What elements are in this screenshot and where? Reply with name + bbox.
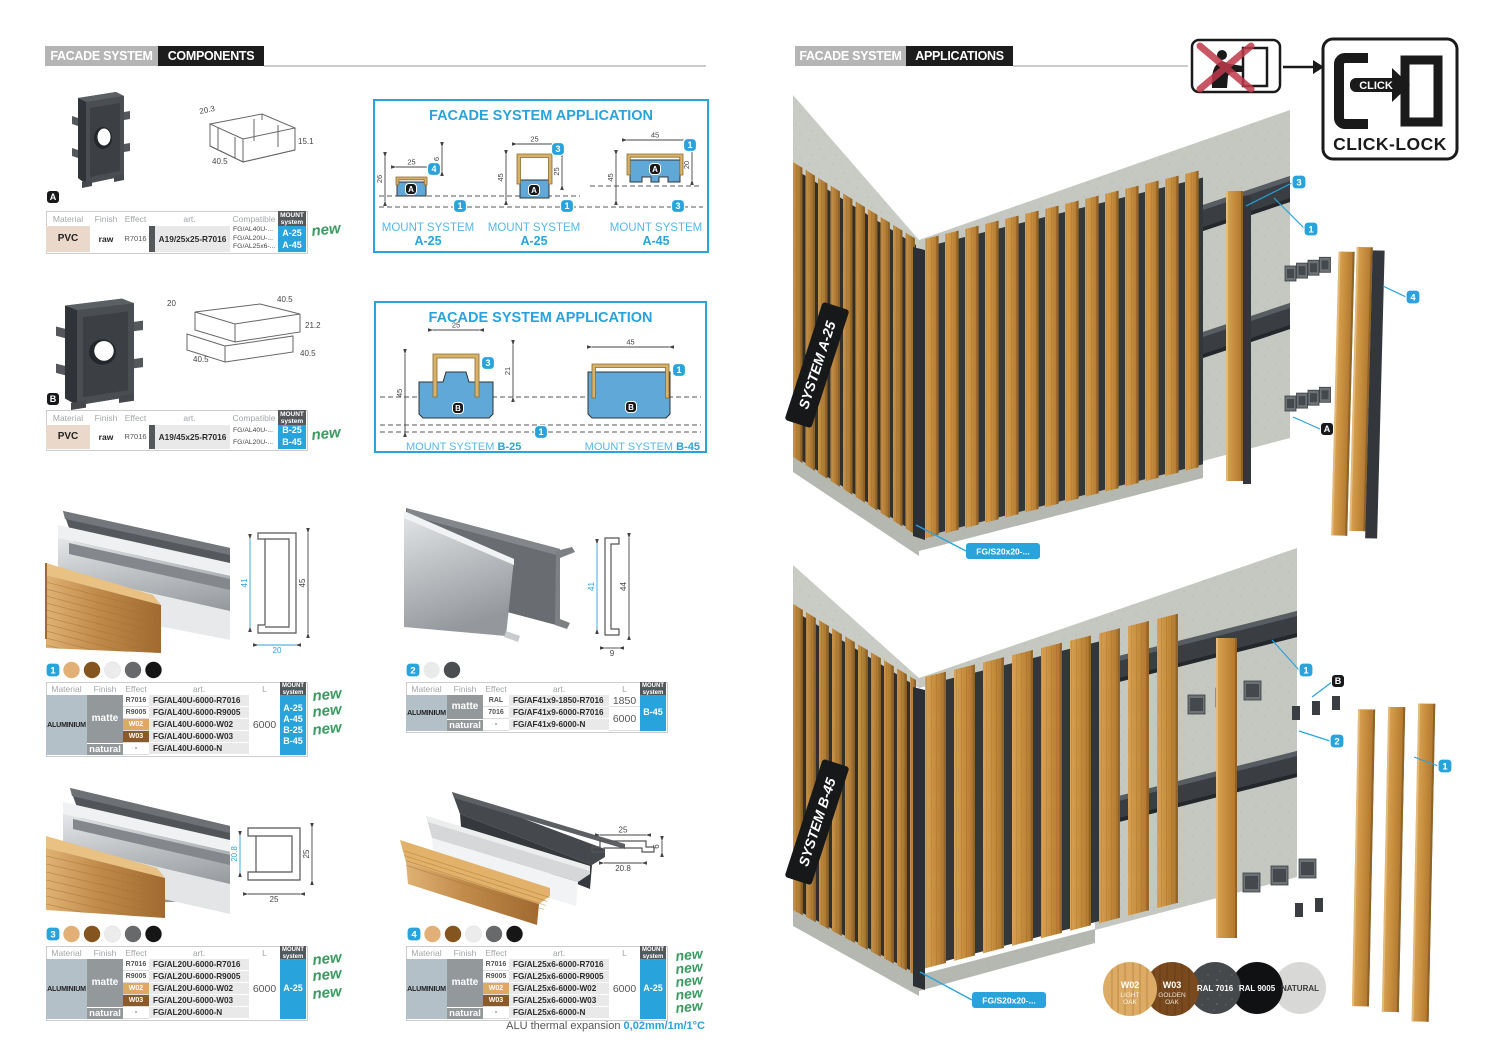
svg-text:A: A [408, 185, 414, 194]
svg-text:1: 1 [1442, 761, 1448, 772]
svg-text:1: 1 [1308, 224, 1314, 235]
svg-text:MOUNT SYSTEM B-45: MOUNT SYSTEM B-45 [585, 441, 700, 453]
svg-text:40.5: 40.5 [212, 157, 228, 166]
svg-text:25: 25 [407, 158, 415, 167]
svg-text:MOUNT SYSTEM: MOUNT SYSTEM [488, 222, 580, 234]
svg-text:9: 9 [610, 649, 615, 658]
svg-text:3: 3 [675, 201, 680, 211]
svg-text:45: 45 [395, 389, 404, 397]
svg-text:FG/S20x20-...: FG/S20x20-... [976, 547, 1029, 557]
svg-text:MOUNT SYSTEM B-25: MOUNT SYSTEM B-25 [406, 441, 521, 453]
svg-text:A-25: A-25 [414, 234, 441, 248]
svg-text:2: 2 [1334, 736, 1339, 747]
svg-text:A: A [1324, 424, 1331, 434]
svg-text:OAK: OAK [1165, 999, 1179, 1006]
svg-text:GOLDEN: GOLDEN [1158, 992, 1186, 999]
svg-text:25: 25 [302, 849, 311, 858]
svg-text:1: 1 [676, 365, 681, 375]
svg-text:3: 3 [485, 358, 490, 368]
svg-text:1: 1 [538, 427, 543, 437]
svg-text:3: 3 [555, 144, 560, 154]
svg-text:21: 21 [503, 367, 512, 375]
svg-text:B: B [628, 403, 634, 412]
svg-text:A: A [531, 186, 537, 195]
svg-text:4: 4 [431, 164, 436, 174]
svg-text:NATURAL: NATURAL [1281, 984, 1319, 993]
svg-text:21.2: 21.2 [305, 321, 321, 330]
svg-text:new: new [311, 424, 343, 444]
svg-text:41: 41 [240, 578, 249, 587]
svg-text:1: 1 [687, 140, 692, 150]
svg-text:45: 45 [651, 131, 659, 140]
svg-text:CLICK: CLICK [1359, 80, 1393, 92]
svg-text:26: 26 [375, 175, 384, 183]
svg-text:45: 45 [298, 578, 307, 587]
svg-text:CLICK-LOCK: CLICK-LOCK [1333, 134, 1447, 154]
svg-text:A-25: A-25 [520, 234, 547, 248]
svg-text:3: 3 [1296, 177, 1301, 188]
svg-text:1: 1 [564, 201, 569, 211]
svg-text:FG/S20x20-...: FG/S20x20-... [982, 996, 1035, 1006]
svg-text:new: new [311, 220, 343, 240]
svg-text:40.5: 40.5 [300, 349, 316, 358]
svg-text:6: 6 [432, 157, 441, 161]
svg-text:new: new [312, 965, 344, 985]
svg-text:6: 6 [652, 844, 661, 849]
svg-text:45: 45 [496, 173, 505, 181]
svg-text:25: 25 [619, 826, 628, 835]
svg-text:RAL 7016: RAL 7016 [1197, 984, 1234, 993]
svg-text:25: 25 [270, 895, 279, 904]
svg-text:25: 25 [530, 135, 538, 144]
svg-text:new: new [312, 719, 344, 739]
svg-text:44: 44 [619, 582, 628, 591]
svg-text:new: new [312, 983, 344, 1003]
svg-text:OAK: OAK [1123, 999, 1137, 1006]
svg-text:4: 4 [1410, 292, 1416, 303]
svg-text:41: 41 [587, 582, 596, 591]
svg-text:W02: W02 [1121, 980, 1140, 990]
svg-text:4: 4 [411, 929, 417, 940]
svg-text:40.5: 40.5 [277, 295, 293, 304]
svg-text:new: new [675, 997, 705, 1016]
svg-text:1: 1 [1303, 665, 1309, 676]
svg-text:B: B [50, 394, 57, 404]
svg-text:A: A [652, 165, 658, 174]
svg-text:A-45: A-45 [642, 234, 669, 248]
svg-text:45: 45 [606, 173, 615, 181]
svg-text:1: 1 [457, 201, 462, 211]
svg-text:15.1: 15.1 [298, 137, 314, 146]
svg-text:B: B [455, 404, 461, 413]
svg-text:20.3: 20.3 [199, 104, 217, 116]
svg-text:B: B [1335, 676, 1342, 686]
svg-text:3: 3 [50, 929, 55, 940]
svg-text:45: 45 [626, 338, 634, 347]
svg-text:LIGHT: LIGHT [1120, 992, 1139, 999]
svg-text:20.8: 20.8 [230, 846, 239, 862]
svg-text:RAL 9005: RAL 9005 [1239, 984, 1276, 993]
svg-text:1: 1 [50, 665, 56, 676]
svg-text:20: 20 [167, 299, 176, 308]
svg-text:20: 20 [273, 646, 282, 655]
svg-text:20: 20 [682, 161, 691, 169]
svg-text:FACADE SYSTEM APPLICATION: FACADE SYSTEM APPLICATION [429, 108, 653, 124]
svg-text:MOUNT SYSTEM: MOUNT SYSTEM [382, 222, 474, 234]
svg-text:40.5: 40.5 [193, 355, 209, 364]
svg-text:new: new [312, 701, 344, 721]
svg-text:25: 25 [452, 321, 460, 330]
svg-text:2: 2 [410, 665, 415, 676]
svg-text:FACADE SYSTEM APPLICATION: FACADE SYSTEM APPLICATION [429, 310, 653, 326]
svg-text:W03: W03 [1163, 980, 1182, 990]
svg-text:20.8: 20.8 [615, 864, 631, 873]
svg-text:A: A [50, 192, 57, 202]
svg-text:MOUNT SYSTEM: MOUNT SYSTEM [610, 222, 702, 234]
svg-text:25: 25 [552, 167, 561, 175]
